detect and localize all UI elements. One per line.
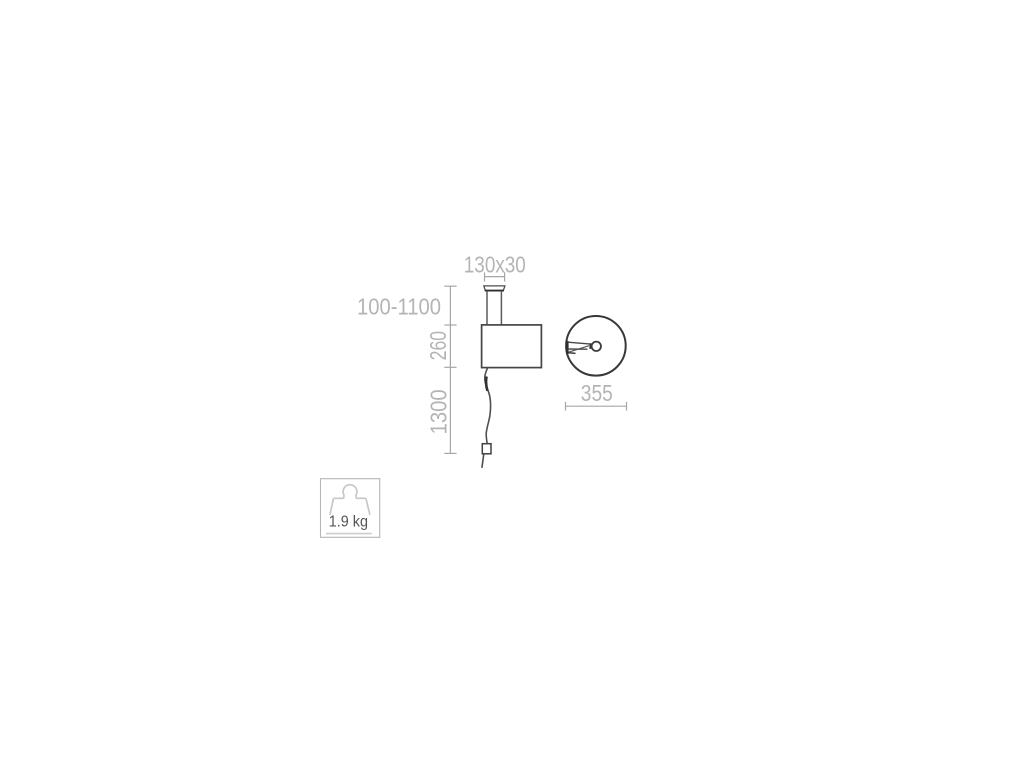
svg-text:100-1100: 100-1100 xyxy=(357,293,441,319)
svg-text:130x30: 130x30 xyxy=(464,252,526,278)
svg-text:355: 355 xyxy=(581,380,613,406)
svg-text:1.9 kg: 1.9 kg xyxy=(329,514,368,531)
svg-text:260: 260 xyxy=(425,331,451,361)
svg-text:1300: 1300 xyxy=(426,389,452,434)
